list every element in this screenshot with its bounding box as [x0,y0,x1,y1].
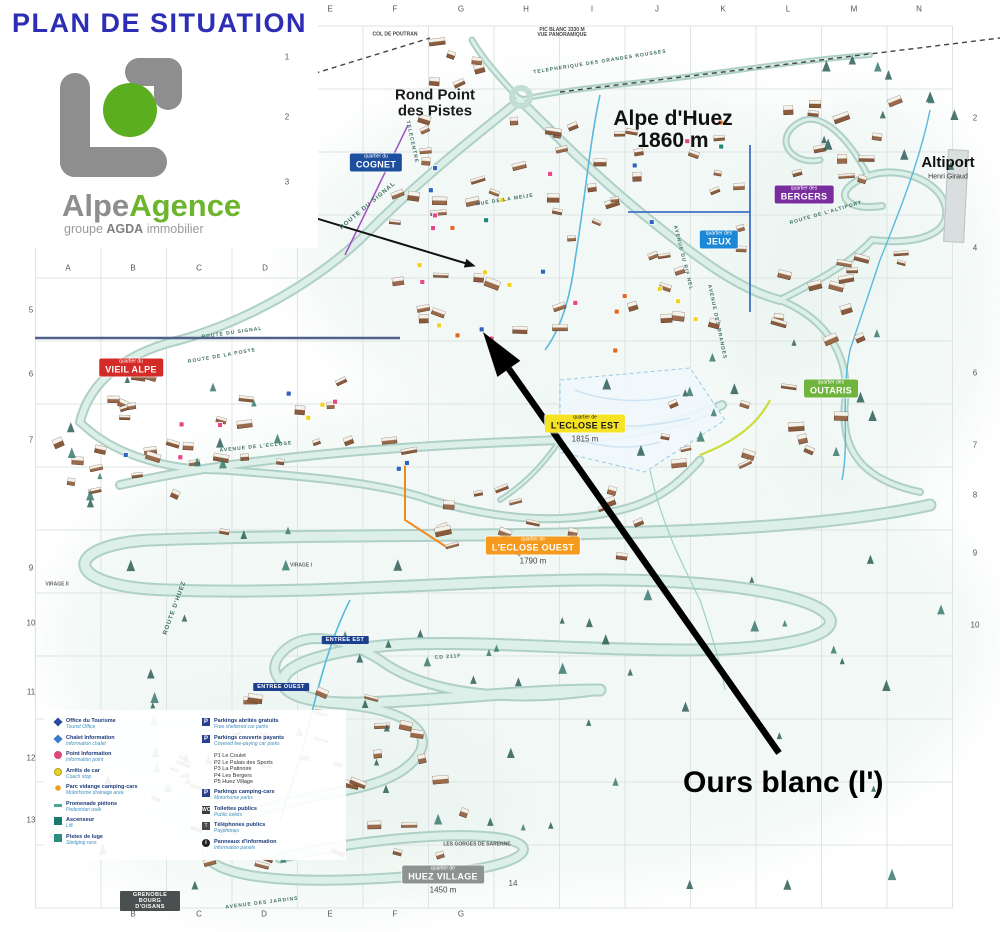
grid-letter-top: K [720,5,725,14]
grid-letter-bottom: G [458,910,464,919]
grid-letter-top: G [458,5,464,14]
grid-letter-top: J [655,5,659,14]
legend-text: Parc vidange camping-carsMotorhome drain… [66,784,138,796]
grid-letter-inner: C [196,264,202,273]
quarter-label-cognet: quartier duCOGNET [350,154,402,173]
square-teal-icon [54,817,62,825]
grid-number-right: 4 [973,244,977,253]
parking-camper-icon: P [202,789,210,797]
place-label-inner-14: 14 [509,880,518,888]
grid-number-right: 9 [973,549,977,558]
grid-number-left: 12 [27,754,36,763]
legend-text: Promenade piétonsPedestrian walk [66,801,117,813]
quarter-label-vieil-alpe: quartier duVIEIL ALPE [99,359,163,378]
legend-text: Parkings camping-carsMotorhome parks [214,789,275,801]
grid-letter-bottom: D [261,910,267,919]
chip-entree-ouest: ENTREE OUEST [253,683,309,691]
grid-number-right: 10 [971,621,980,630]
grid-number-left: 11 [27,688,35,697]
legend-item: PParkings camping-carsMotorhome parks [202,789,275,801]
grid-letter-inner: B [130,264,135,273]
place-label-virage-2: VIRAGE II [45,582,68,587]
legend-text: Arrêts de carCoach stop [66,768,100,780]
legend-text: Panneaux d'informationInformation panels [214,839,276,851]
grid-letter-bottom: C [196,910,202,919]
legend-text: Chalet InformationInformation chalet [66,735,115,747]
grid-number-left: 6 [29,370,33,379]
grid-number-right: 6 [973,369,977,378]
wc-icon: WC [202,806,210,814]
parking-paid-icon: P [202,735,210,743]
place-label-gorges-sarenne: LES GORGES DE SARENNE [443,842,510,847]
legend-item: Office du TourismeTourist Office [54,718,116,730]
place-label-altiport-sub: Henri Giraud [928,173,968,180]
grid-letter-inner: A [65,264,70,273]
legend-item: iPanneaux d'informationInformation panel… [202,839,276,851]
grid-number-right: 7 [973,441,977,450]
grid-letter-top: I [591,5,593,14]
road-label: ROUTE D'HUEZ [162,580,187,635]
legend-parking-list: P1 Le CouletP2 Le Palais des SportsP3 La… [214,753,273,786]
legend-item: Pistes de lugeSledging runs [54,834,103,846]
grid-letter-top: L [786,5,790,14]
quarter-label-jeux: quartier desJEUX [700,231,738,250]
legend-item: TTéléphones publicsPayphones [202,822,265,834]
phone-icon: T [202,822,210,830]
grid-number-inner: 3 [285,178,289,187]
plan-de-situation-map: PLAN DE SITUATION AlpeAgence groupe AGDA… [0,0,1000,932]
grid-number-left: 5 [29,306,33,315]
legend-text: Point InformationInformation point [66,751,112,763]
quarter-label-eclose-est: quartier deL'ECLOSE EST1815 m [545,415,625,444]
road-label: TELEPHERIQUE DES GRANDES ROUSSES [533,48,667,75]
grid-number-left: 9 [29,564,33,573]
info-icon: i [202,839,210,847]
road-label: TELECENTRE [405,120,420,164]
diamond-blue-icon [53,717,62,726]
grid-letter-top: F [393,5,398,14]
road-label: ROUTE DE LA POSTE [187,347,256,365]
legend-text: Téléphones publicsPayphones [214,822,265,834]
chip-grenoble: GRENOBLE BOURG D'OISANS [120,891,180,911]
grid-number-left: 10 [27,619,36,628]
road-label: AVENUE DES JARDINS [225,896,299,911]
place-label-col-de-poutran: COL DE POUTRAN [373,32,418,37]
grid-letter-bottom: F [393,910,398,919]
square-teal2-icon [54,834,62,842]
legend-text: Parkings couverts payantsCovered fee-pay… [214,735,284,747]
grid-number-left: 13 [27,816,36,825]
place-label-altiport: Altiport [921,155,974,171]
diamond-lightblue-icon [53,734,62,743]
road-label: AVENUE DE L'ECLOSE [219,440,292,454]
place-label-pic-blanc: PIC BLANC 3330 MVUE PANORAMIQUE [537,28,586,39]
quarter-label-eclose-ouest: quartier deL'ECLOSE OUEST1790 m [486,537,580,566]
grid-number-inner: 1 [285,53,289,62]
legend-item: Arrêts de carCoach stop [54,768,100,780]
dash-teal-icon [54,804,62,807]
legend-text: Toilettes publicsPublic toilets [214,806,257,818]
legend-item: Point InformationInformation point [54,751,112,763]
grid-letter-top: H [523,5,529,14]
legend-text: Office du TourismeTourist Office [66,718,116,730]
quarter-label-outaris: quartier desOUTARIS [804,380,858,399]
grid-letter-top: N [916,5,922,14]
road-label: RUE DE LA MEIJE [476,192,534,207]
legend-item: PParkings couverts payantsCovered fee-pa… [202,735,284,747]
place-label-rond-point: Rond Pointdes Pistes [395,87,475,119]
property-annotation-label: Ours blanc (l') [683,766,884,800]
grid-number-left: 7 [29,436,33,445]
grid-number-inner: 2 [285,113,289,122]
legend-item: AscenseurLift [54,817,94,829]
legend-item: Chalet InformationInformation chalet [54,735,115,747]
grid-number-right: 8 [973,491,977,500]
parking-free-icon: P [202,718,210,726]
road-label: ROUTE DU SIGNAL [201,326,263,340]
legend-item: Parc vidange camping-carsMotorhome drain… [54,784,138,796]
road-label: CD 211F [434,653,461,661]
quarter-label-bergers: quartier desBERGERS [775,186,834,205]
legend-item: Promenade piétonsPedestrian walk [54,801,117,813]
circle-yellow-icon [54,768,62,776]
road-label: AVENUE DES BRANDES [706,284,728,360]
legend-text: Parkings abrités gratuitsFree sheltered … [214,718,279,730]
map-legend: Office du TourismeTourist OfficeChalet I… [44,710,346,860]
dot-orange-icon [55,785,61,791]
place-label-virage-1: VIRAGE I [290,563,312,568]
circle-red-icon [54,751,62,759]
grid-letter-bottom: E [327,910,332,919]
grid-letter-top: M [851,5,858,14]
grid-number-right: 2 [973,114,977,123]
grid-letter-top: E [327,5,332,14]
legend-item: WCToilettes publicsPublic toilets [202,806,257,818]
quarter-label-huez-village: quartier deHUEZ VILLAGE1450 m [402,866,484,895]
legend-text: Pistes de lugeSledging runs [66,834,103,846]
place-label-alpe-dhuez: Alpe d'Huez1860 m [613,108,732,152]
legend-item: PParkings abrités gratuitsFree sheltered… [202,718,279,730]
chip-entree-est: ENTREE EST [322,636,369,644]
grid-letter-inner: D [262,264,268,273]
road-label: ROUTE DU SIGNAL [339,181,397,231]
legend-text: AscenseurLift [66,817,94,829]
road-label: AVENUE DU RIF NEL [672,225,694,291]
